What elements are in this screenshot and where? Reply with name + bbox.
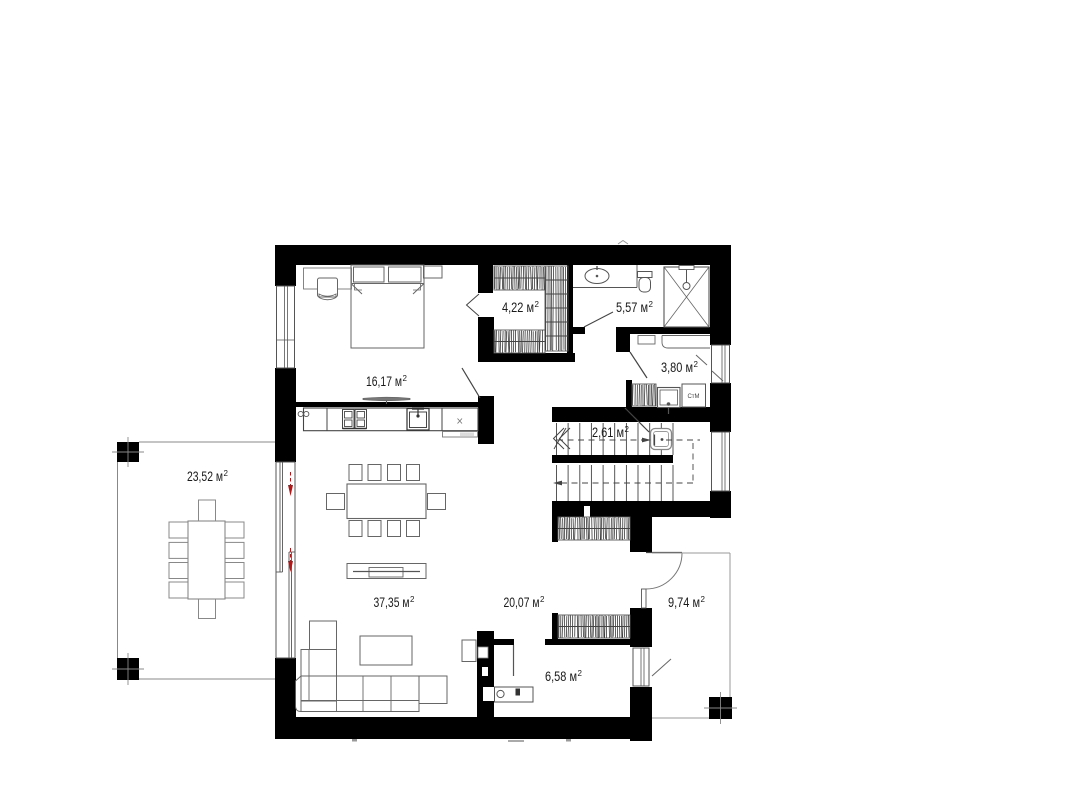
svg-text:5,57 м: 5,57 м — [616, 300, 648, 315]
svg-text:2: 2 — [701, 595, 706, 604]
svg-text:СтМ: СтМ — [687, 394, 699, 400]
svg-text:2: 2 — [578, 669, 583, 678]
svg-text:16,17 м: 16,17 м — [366, 374, 402, 389]
svg-text:9,74 м: 9,74 м — [668, 595, 700, 610]
svg-text:2,61 м: 2,61 м — [592, 425, 624, 440]
svg-text:6,58 м: 6,58 м — [545, 669, 577, 684]
svg-text:4,22 м: 4,22 м — [502, 300, 534, 315]
svg-text:2: 2 — [540, 595, 545, 604]
svg-text:2: 2 — [403, 374, 408, 383]
svg-text:23,52 м: 23,52 м — [187, 469, 223, 484]
svg-text:2: 2 — [649, 300, 654, 309]
svg-text:3,80 м: 3,80 м — [661, 360, 693, 375]
svg-text:20,07 м: 20,07 м — [504, 595, 540, 610]
svg-text:2: 2 — [410, 595, 415, 604]
svg-text:2: 2 — [625, 425, 630, 434]
svg-text:2: 2 — [535, 300, 540, 309]
svg-text:37,35 м: 37,35 м — [374, 595, 410, 610]
svg-text:2: 2 — [224, 469, 229, 478]
svg-text:2: 2 — [694, 360, 699, 369]
